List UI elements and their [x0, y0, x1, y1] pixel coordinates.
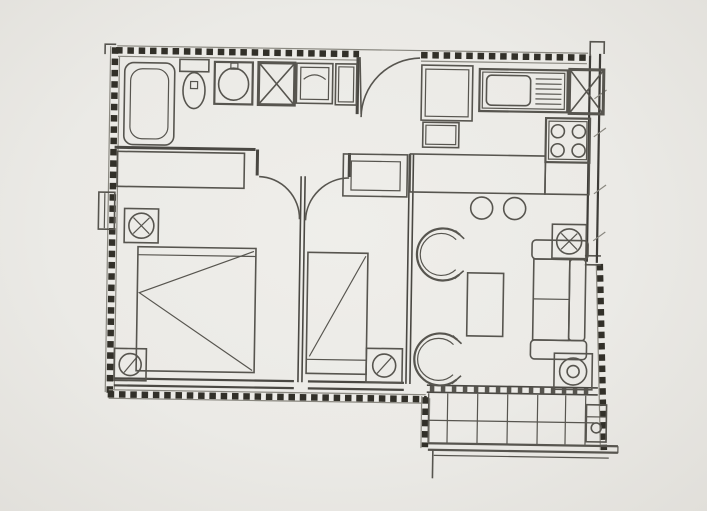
equipment-symbol-cross — [124, 208, 159, 243]
round-chair — [417, 228, 465, 281]
round-chair — [414, 333, 462, 386]
kitchen-sink — [479, 69, 568, 112]
entry-door-arc — [361, 57, 420, 118]
washbasin — [214, 62, 253, 105]
ventilation-shaft-icon — [258, 63, 295, 106]
single-bed — [306, 252, 368, 374]
floorplan-drawing — [0, 0, 707, 511]
kitchen — [410, 65, 604, 221]
bedroom1-wardrobe — [117, 151, 245, 188]
balcony-railing — [427, 443, 618, 481]
window-bands — [114, 378, 598, 395]
coffee-table — [467, 273, 504, 337]
balcony — [427, 393, 618, 481]
balcony-grid — [428, 393, 595, 445]
bedroom2-wardrobe — [343, 154, 408, 197]
bedroom1-door-arc — [258, 177, 300, 220]
bar-stools — [471, 197, 526, 220]
bathroom-cabinet — [335, 64, 357, 105]
bathroom — [124, 58, 357, 148]
stove-4-burners — [545, 118, 590, 163]
entry-closet — [421, 65, 473, 148]
washing-machine — [296, 63, 333, 104]
interior-walls — [111, 53, 415, 384]
scanned-floorplan-page — [0, 0, 707, 511]
bathtub — [124, 62, 175, 145]
bedroom-1 — [114, 151, 258, 382]
double-bed — [136, 247, 256, 373]
equipment-symbol-cross — [552, 224, 587, 259]
kitchen-bar-counter — [410, 154, 590, 195]
living-room — [414, 222, 595, 390]
toilet — [179, 59, 209, 108]
equipment-symbol-slash — [114, 348, 146, 380]
equipment-symbol-slash — [366, 348, 403, 383]
